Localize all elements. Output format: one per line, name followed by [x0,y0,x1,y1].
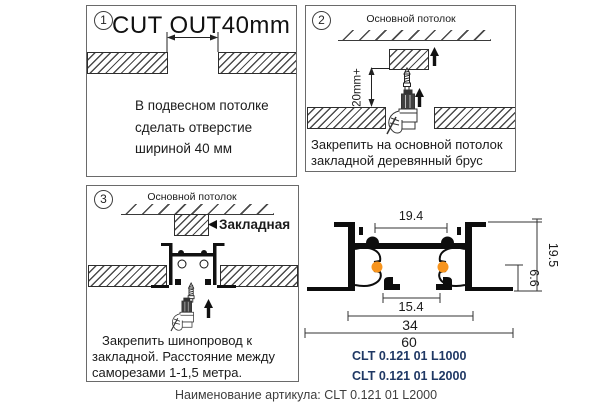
article-footer-label: Наименование артикула: CLT 0.121 01 L200… [175,388,437,402]
step-1-line-3: шириной 40 мм [135,138,269,160]
mini-conductor-left [178,260,186,268]
dim-recess: 6.6 [527,269,541,286]
instruction-sheet: 1 CUT OUT40mm В подвесном потолке сделат… [0,0,600,414]
step-2-line-1: Закрепить на основной потолок [311,137,503,153]
dim-height: 19.5 [546,243,560,267]
panel-step-3: 3 Основной потолок Закладная [86,185,299,382]
step-1-instructions: В подвесном потолке сделать отверстие ши… [135,95,269,160]
hand-with-screwdriver-icon [387,90,417,134]
mini-track-profile [151,243,236,288]
panel-step-2: 2 Основной потолок 20mm+ Закрепить на ос… [305,5,516,172]
step-2-line-2: закладной деревянный брус [311,153,503,169]
dim-arrow-down [369,99,375,107]
dimension-lines [305,219,542,338]
article-code-2: CLT 0.121 01 L2000 [352,369,466,383]
beam-up-arrow-icon [430,47,439,66]
hand-with-screwdriver-icon-2 [171,298,194,331]
conductor-right [438,262,449,273]
gap-dimension-label: 20mm+ [352,65,365,111]
step-1-line-2: сделать отверстие [135,117,269,139]
dim-overall-width: 60 [401,334,417,350]
dim-bottom-inner: 15.4 [398,299,423,314]
dim-arrow-right [210,35,218,41]
article-code-1: CLT 0.121 01 L1000 [352,349,466,363]
up-arrow-icon-2 [204,299,213,318]
step-3-line-1: Закрепить шинопровод к [92,333,275,349]
screw-up-arrow-icon [415,88,424,107]
embed-label-arrow-icon [208,220,217,229]
step-3-line-3: саморезами 1-1,5 метра. [92,365,275,381]
track-cross-section: 19.4 15.4 34 60 19.5 6.6 [300,190,562,352]
panel-step-1: 1 CUT OUT40mm В подвесном потолке сделат… [86,5,297,177]
dim-arrow-left [167,35,175,41]
conductor-left [372,262,383,273]
profile-body [307,222,513,291]
step-3-line-2: закладной. Расстояние между [92,349,275,365]
dim-body-width: 34 [402,317,418,333]
step-1-line-1: В подвесном потолке [135,95,269,117]
step-2-instructions: Закрепить на основной потолок закладной … [311,137,503,169]
mini-conductor-right [200,260,208,268]
dim-top-inner: 19.4 [399,209,423,223]
step-3-instructions: Закрепить шинопровод к закладной. Рассто… [92,333,275,381]
screw-icon [404,68,411,91]
